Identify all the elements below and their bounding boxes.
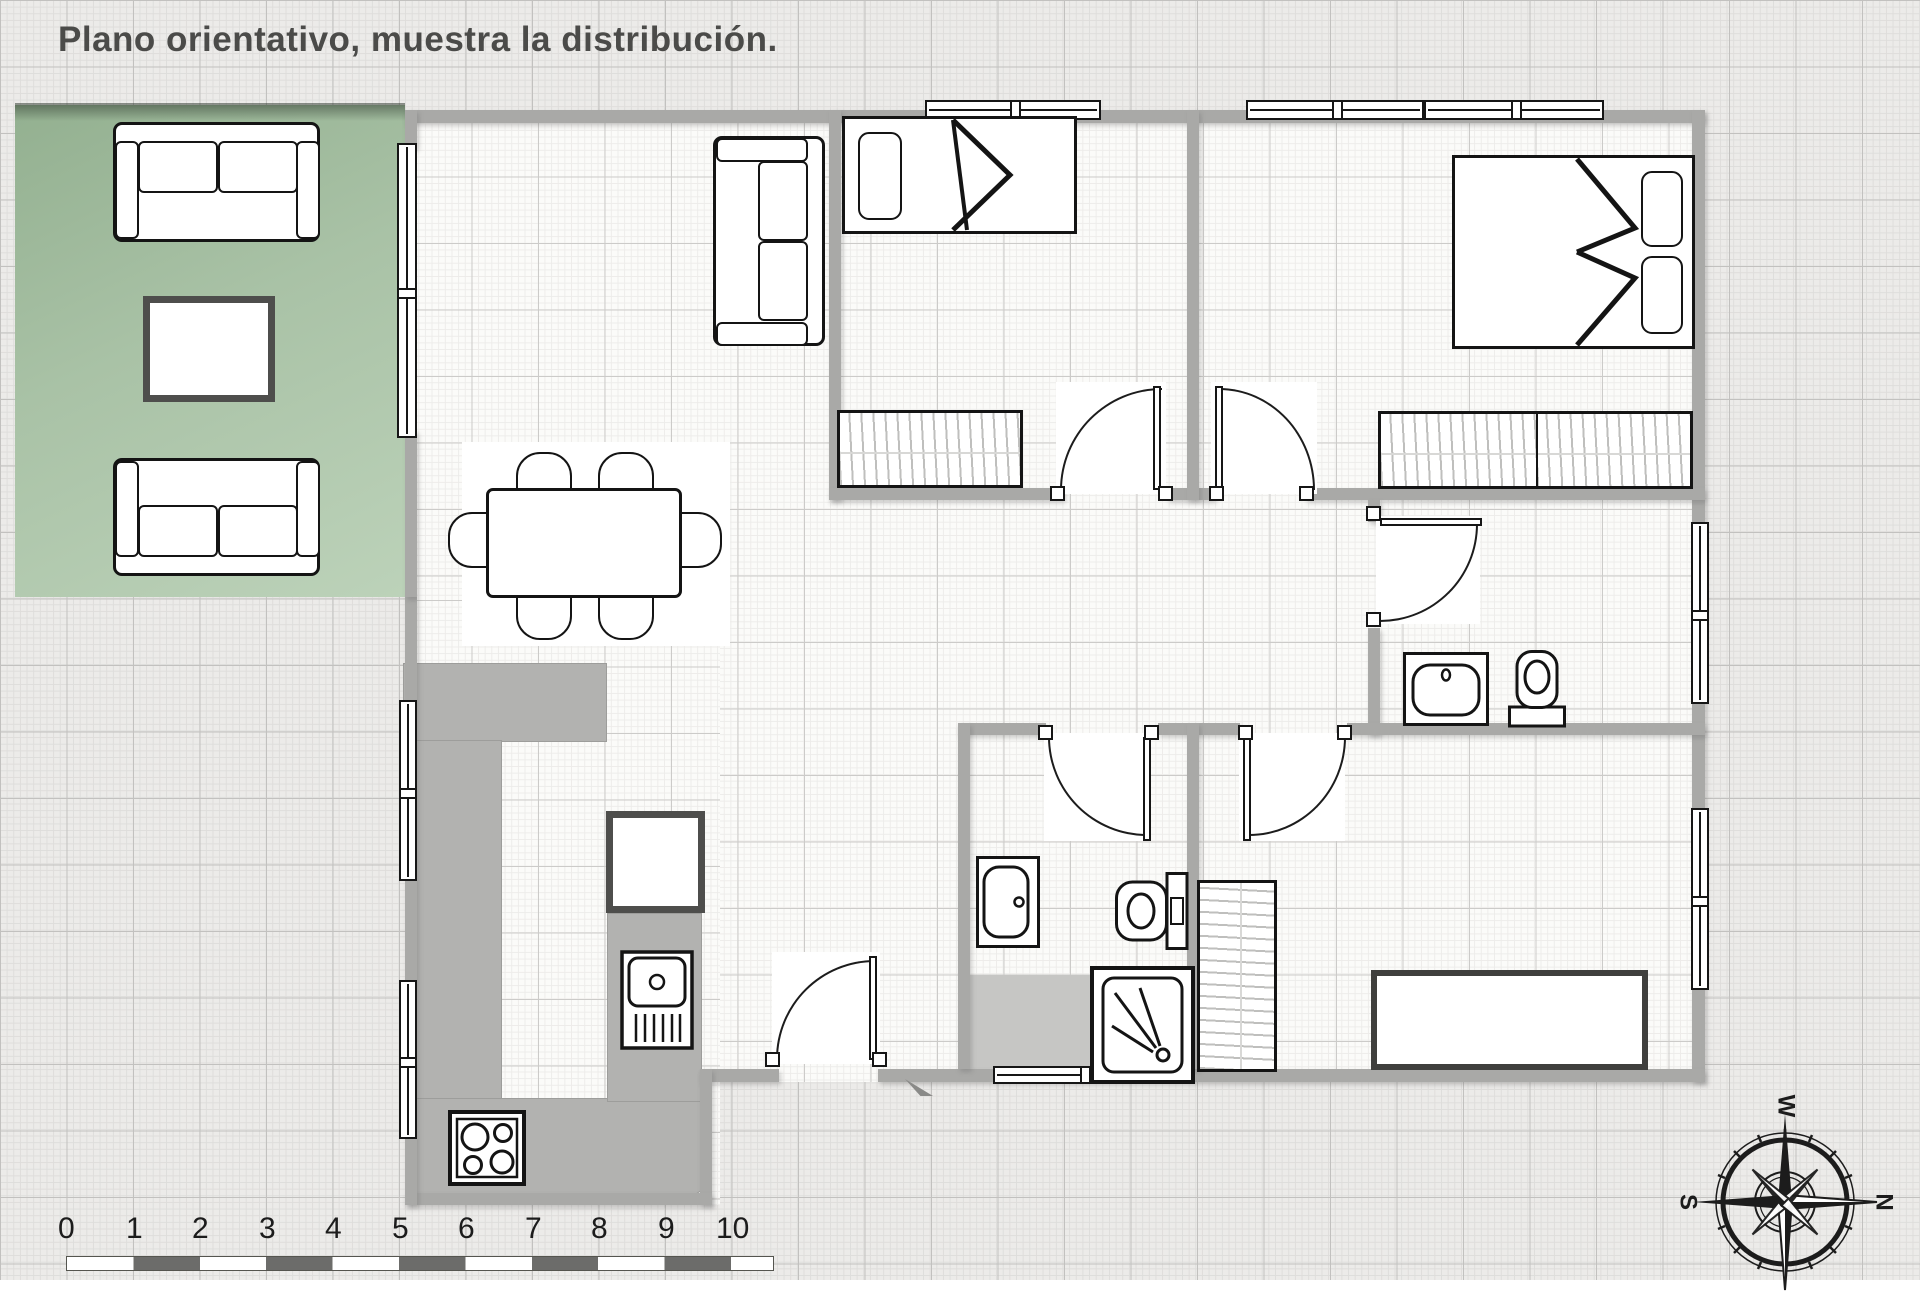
wall-bathroom3-left-bottom [1368, 628, 1380, 735]
sofa-terrace-bottom [113, 458, 320, 576]
door-post [765, 1052, 780, 1067]
bathroom-tiled-floor [970, 975, 1092, 1069]
wardrobe-bedroom1 [837, 410, 1023, 488]
sofa-cushion [218, 141, 298, 193]
door-post [872, 1052, 887, 1067]
compass-letter-s: S [1675, 1194, 1702, 1210]
bed-pillow [1641, 256, 1683, 334]
kitchen-island-table [606, 811, 705, 913]
shower [1090, 966, 1195, 1084]
kitchen-counter-left [415, 740, 502, 1102]
compass-rose: W S N [1675, 1092, 1895, 1312]
sofa-armrest [296, 461, 320, 557]
wall-living-divider-bottom [405, 430, 417, 597]
wall-corridor-c [1305, 488, 1705, 500]
ruler-label-0: 0 [58, 1212, 75, 1246]
door-post [1299, 486, 1314, 501]
ruler-label-6: 6 [458, 1212, 475, 1246]
sofa-cushion [758, 241, 808, 321]
door-post [1050, 486, 1065, 501]
door-post [1238, 725, 1253, 740]
bathroom-sink [1403, 652, 1489, 726]
compass-letter-w: W [1773, 1095, 1800, 1118]
graph-paper-background: Plano orientativo, muestra la distribuci… [0, 0, 1920, 1280]
door-post [1144, 725, 1159, 740]
wall-bottomrooms-b [1158, 723, 1240, 735]
door-leaf-bathroom1 [1143, 737, 1151, 841]
dining-table [486, 488, 682, 598]
window-terrace [397, 143, 417, 438]
dining-chair [516, 592, 572, 640]
wardrobe-bedroom3 [1197, 880, 1277, 1072]
single-bed [842, 116, 1077, 234]
bed-pillow [1641, 171, 1683, 247]
sofa-cushion [218, 505, 298, 557]
ruler-label-1: 1 [126, 1212, 143, 1246]
ruler-label-8: 8 [591, 1212, 608, 1246]
stove-cooktop [448, 1110, 526, 1186]
window-bathroom3 [1691, 522, 1709, 704]
coffee-table [143, 296, 275, 402]
terrace-shadow [15, 103, 405, 121]
sofa-dining [713, 136, 825, 346]
sofa-cushion [138, 141, 218, 193]
dining-chair [598, 592, 654, 640]
wall-kitchen-bottom [405, 1193, 712, 1205]
door-post [1366, 506, 1381, 521]
wall-kitchen-right-stub [700, 1069, 712, 1205]
bathroom-sink [976, 856, 1040, 948]
window-bedroom2-b [1424, 100, 1604, 120]
wall-bathroom1-left [958, 723, 970, 1069]
door-leaf-entrance [869, 956, 877, 1060]
window-kitchen-1 [399, 700, 417, 881]
sofa-cushion [758, 161, 808, 241]
kitchen-sink-unit [620, 950, 694, 1050]
door-post [1158, 486, 1173, 501]
door-leaf-bedroom1 [1153, 386, 1161, 490]
sofa-armrest [115, 461, 139, 557]
sofa-armrest [716, 322, 808, 346]
bed-pillow [858, 132, 902, 220]
door-post [1209, 486, 1224, 501]
ruler-label-4: 4 [325, 1212, 342, 1246]
door-post [1337, 725, 1352, 740]
scale-bar [66, 1256, 774, 1271]
plan-title: Plano orientativo, muestra la distribuci… [58, 20, 778, 60]
sofa-terrace-top [113, 122, 320, 242]
ruler-label-2: 2 [192, 1212, 209, 1246]
door-leaf-bedroom3 [1243, 737, 1251, 841]
kitchen-counter-top [403, 663, 607, 742]
bed-bedroom3 [1371, 970, 1648, 1070]
wardrobe-bedroom2 [1378, 411, 1693, 489]
door-post [1038, 725, 1053, 740]
wardrobe-divider [1536, 414, 1539, 486]
toilet [1508, 650, 1566, 728]
ruler-label-3: 3 [259, 1212, 276, 1246]
toilet [1115, 872, 1189, 950]
door-post [1366, 612, 1381, 627]
compass-letter-n: N [1871, 1193, 1895, 1210]
window-kitchen-2 [399, 980, 417, 1139]
sofa-cushion [138, 505, 218, 557]
double-bed [1452, 155, 1695, 349]
wall-bedroom-divider [1187, 110, 1199, 500]
ruler-label-7: 7 [525, 1212, 542, 1246]
ruler-label-9: 9 [658, 1212, 675, 1246]
sofa-armrest [296, 141, 320, 239]
sofa-armrest [115, 141, 139, 239]
window-bedroom3 [1691, 808, 1709, 990]
sofa-armrest [716, 138, 808, 162]
door-leaf-bedroom2 [1215, 386, 1223, 490]
door-leaf-bathroom3 [1380, 518, 1482, 526]
wall-bottomrooms-a [958, 723, 1046, 735]
ruler-label-5: 5 [392, 1212, 409, 1246]
wall-corridor-a [829, 488, 1064, 500]
ruler-label-10: 10 [716, 1212, 749, 1246]
window-bedroom2-a [1246, 100, 1424, 120]
